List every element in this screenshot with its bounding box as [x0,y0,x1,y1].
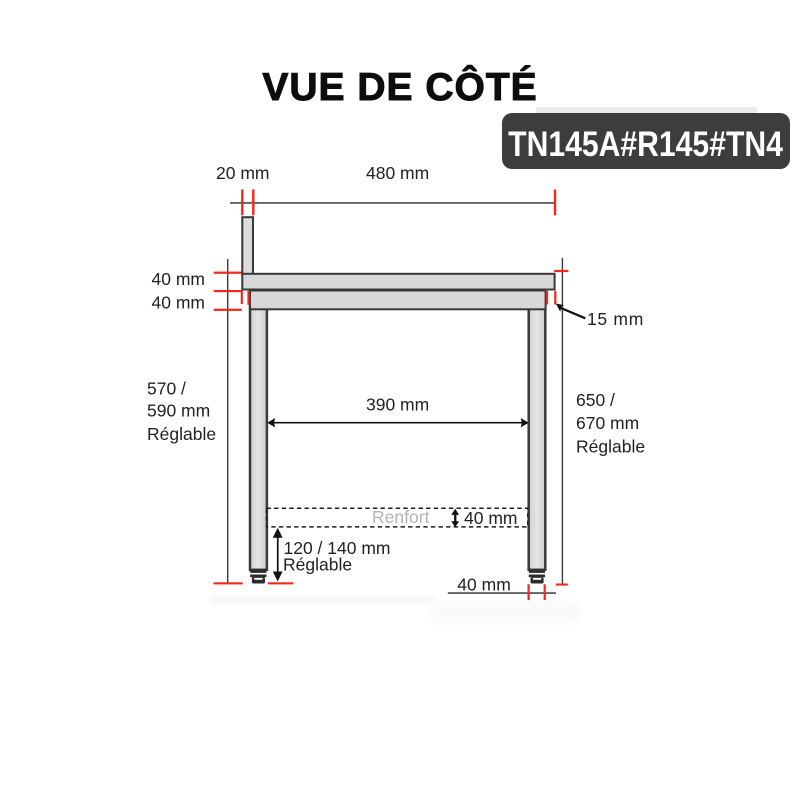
svg-text:390 mm: 390 mm [366,395,429,415]
svg-text:Réglable: Réglable [576,437,645,457]
svg-text:40 mm: 40 mm [152,293,205,313]
svg-text:15 mm: 15 mm [587,309,644,329]
svg-text:20 mm: 20 mm [216,163,269,183]
svg-text:40 mm: 40 mm [464,508,517,528]
svg-text:Réglable: Réglable [283,555,352,575]
svg-text:40 mm: 40 mm [457,574,510,594]
svg-text:650 /: 650 / [576,390,615,410]
svg-text:Renfort: Renfort [372,507,430,527]
svg-text:570 /: 570 / [147,379,186,399]
svg-text:480 mm: 480 mm [366,163,429,183]
svg-text:Réglable: Réglable [147,424,216,444]
svg-text:40 mm: 40 mm [152,269,205,289]
svg-text:670 mm: 670 mm [576,413,639,433]
svg-text:590 mm: 590 mm [147,401,210,421]
